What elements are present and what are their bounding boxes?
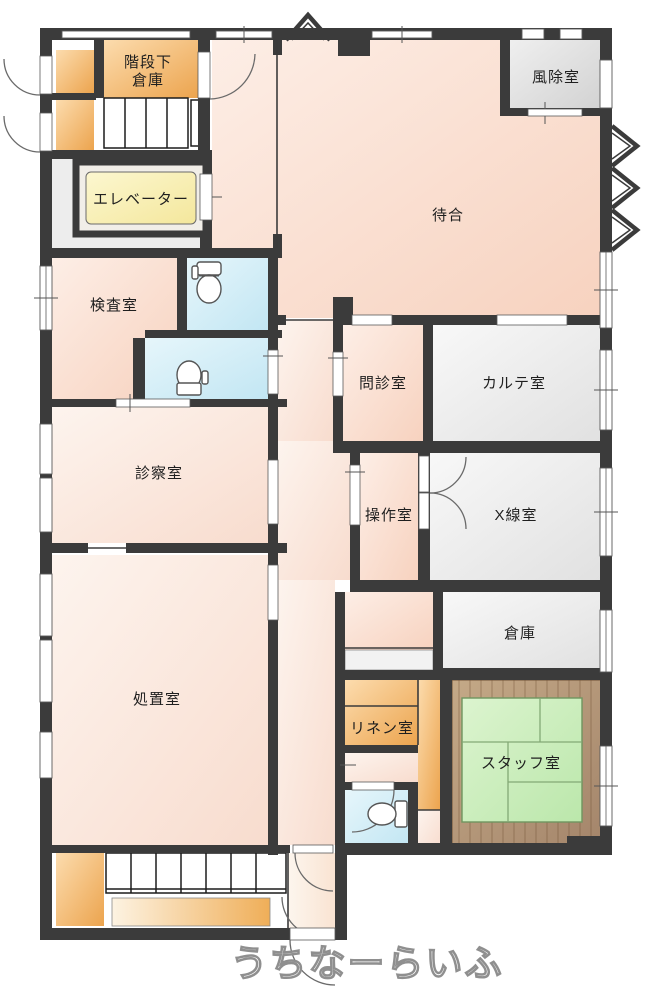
room-label-under-stairs-storage: 倉庫 — [132, 72, 164, 89]
elevator-door — [200, 174, 212, 220]
room-label-records: カルテ室 — [482, 375, 546, 392]
room-label-consult: 診察室 — [135, 464, 183, 482]
bay-window-right — [612, 126, 637, 166]
window — [62, 31, 190, 38]
main-entrance-door — [290, 928, 335, 940]
sliding-door — [268, 350, 278, 394]
watermark-text: うちなーらいふ — [231, 943, 504, 984]
room-label-linen: リネン室 — [350, 720, 414, 737]
staircase-top — [104, 98, 204, 148]
alcove — [345, 592, 433, 650]
toilet-door — [352, 782, 394, 790]
staircase-bottom — [106, 853, 286, 926]
room-label-elevator: エレベーター — [93, 191, 189, 208]
corridor-patch — [418, 810, 440, 848]
window — [600, 60, 612, 108]
window — [40, 732, 52, 778]
room-label-xray: X線室 — [494, 507, 537, 524]
room-label-exam: 検査室 — [90, 297, 138, 314]
corridor-upper — [278, 320, 333, 441]
room-toilet-2 — [145, 338, 268, 399]
corridor-toilet-front — [345, 753, 418, 782]
linen-column — [418, 680, 440, 810]
sliding-door — [350, 465, 360, 525]
xray-double-door — [419, 493, 429, 529]
room-label-staff: スタッフ室 — [481, 755, 561, 772]
entrance-step-lower — [56, 100, 94, 150]
sliding-door — [333, 352, 343, 396]
room-label-storage: 倉庫 — [504, 625, 536, 642]
corridor-mid — [278, 441, 350, 580]
room-label-control: 操作室 — [365, 507, 413, 524]
window — [40, 478, 52, 532]
windbreak-inner-door — [528, 109, 582, 116]
room-label-interview: 問診室 — [359, 375, 407, 392]
room-label-windbreak: 風除室 — [532, 69, 580, 86]
entrance-door-left — [40, 56, 52, 94]
room-label-under-stairs-storage: 階段下 — [124, 54, 172, 71]
entry-ramp — [112, 898, 270, 926]
sliding-door — [352, 315, 392, 325]
vestibule-door — [293, 845, 333, 853]
sliding-door — [116, 399, 190, 407]
entry-slope-side — [56, 853, 104, 926]
closet-strip — [345, 650, 433, 670]
records-opening — [497, 315, 567, 325]
bay-window-right — [612, 168, 637, 208]
storage-door — [198, 52, 210, 98]
window — [40, 574, 52, 636]
bay-window-right — [612, 210, 637, 250]
entrance-door-top — [522, 29, 544, 39]
entrance-door-top — [560, 29, 582, 39]
corridor-lower — [278, 580, 335, 845]
floor-plan: 階段下 倉庫 風除室 エレベーター 待合 検査室 問診室 カルテ室 診察室 操作… — [0, 0, 663, 996]
room-label-treatment: 処置室 — [133, 691, 181, 708]
sliding-door — [268, 460, 278, 524]
window — [40, 424, 52, 474]
sliding-door — [268, 565, 278, 620]
floor-plan-canvas: 階段下 倉庫 風除室 エレベーター 待合 検査室 問診室 カルテ室 診察室 操作… — [0, 0, 663, 996]
entrance-door-left — [40, 113, 52, 151]
xray-double-door — [419, 456, 429, 492]
window — [40, 640, 52, 702]
room-label-waiting: 待合 — [432, 207, 464, 224]
toilet-icon — [368, 801, 407, 827]
entrance-step-upper — [56, 50, 94, 93]
